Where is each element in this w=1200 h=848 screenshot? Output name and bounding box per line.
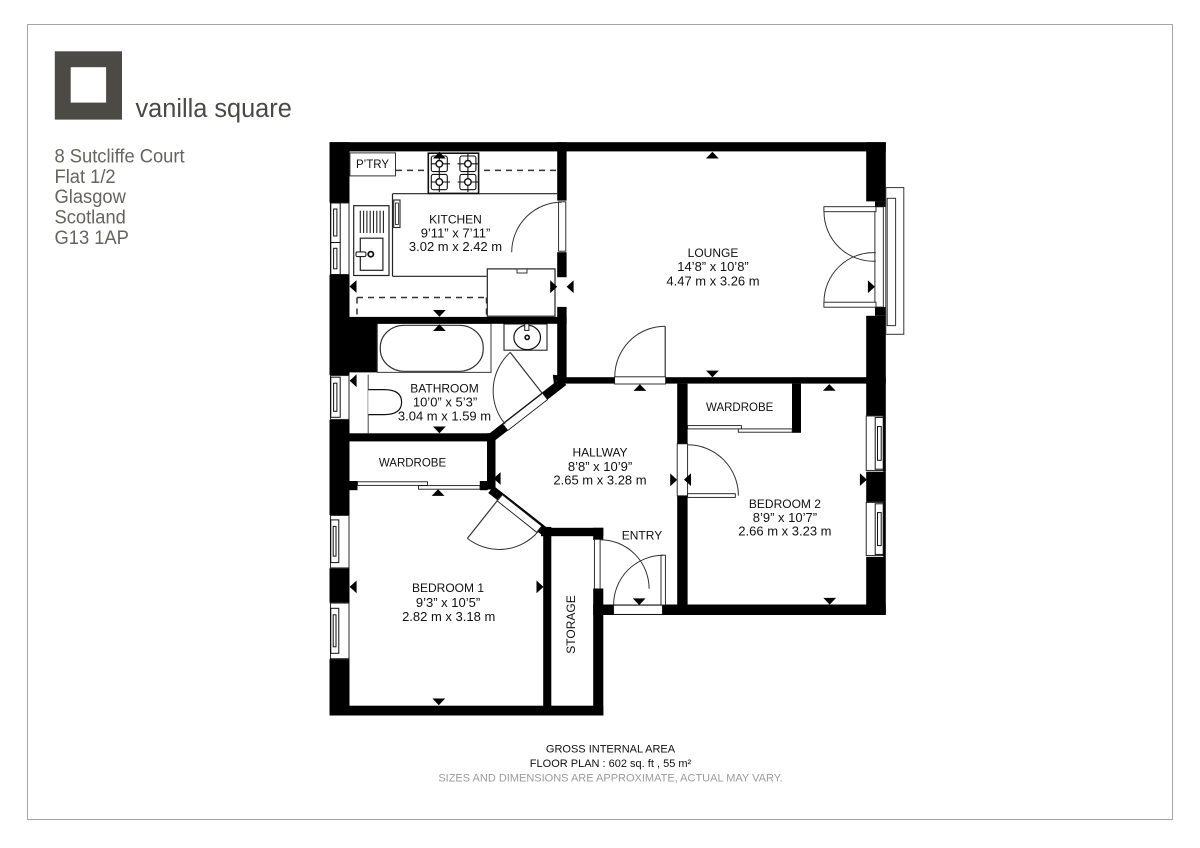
- svg-text:WARDROBE: WARDROBE: [379, 458, 447, 470]
- svg-text:ENTRY: ENTRY: [622, 529, 662, 543]
- svg-text:WARDROBE: WARDROBE: [706, 402, 774, 414]
- svg-text:14’8” x 10’8”: 14’8” x 10’8”: [677, 259, 749, 274]
- svg-text:Flat 1/2: Flat 1/2: [54, 166, 115, 187]
- svg-text:2.82 m x 3.18 m: 2.82 m x 3.18 m: [402, 609, 495, 624]
- svg-text:3.02 m x 2.42 m: 3.02 m x 2.42 m: [409, 239, 502, 254]
- svg-text:4.47 m x 3.26 m: 4.47 m x 3.26 m: [666, 274, 759, 289]
- svg-text:BEDROOM 1: BEDROOM 1: [412, 581, 484, 595]
- svg-text:3.04 m x 1.59 m: 3.04 m x 1.59 m: [398, 409, 491, 424]
- svg-text:BATHROOM: BATHROOM: [410, 382, 478, 396]
- svg-text:9’3” x 10’5”: 9’3” x 10’5”: [416, 595, 480, 610]
- svg-text:KITCHEN: KITCHEN: [429, 212, 482, 226]
- svg-text:Scotland: Scotland: [54, 206, 125, 227]
- svg-text:10’0” x 5’3”: 10’0” x 5’3”: [413, 395, 477, 410]
- svg-text:2.66 m x 3.23 m: 2.66 m x 3.23 m: [738, 524, 831, 539]
- svg-text:STORAGE: STORAGE: [564, 595, 578, 653]
- svg-text:vanilla square: vanilla square: [136, 95, 292, 123]
- svg-text:FLOOR PLAN : 602 sq. ft , 55 m: FLOOR PLAN : 602 sq. ft , 55 m²: [530, 758, 692, 770]
- svg-text:8 Sutcliffe Court: 8 Sutcliffe Court: [54, 145, 185, 166]
- svg-text:GROSS INTERNAL AREA: GROSS INTERNAL AREA: [546, 744, 676, 756]
- svg-text:HALLWAY: HALLWAY: [572, 446, 627, 460]
- svg-text:2.65 m x 3.28 m: 2.65 m x 3.28 m: [553, 473, 646, 488]
- svg-text:SIZES AND DIMENSIONS ARE APPRO: SIZES AND DIMENSIONS ARE APPROXIMATE, AC…: [438, 773, 782, 785]
- svg-text:P’TRY: P’TRY: [356, 159, 389, 171]
- svg-text:G13 1AP: G13 1AP: [54, 227, 128, 248]
- svg-text:Glasgow: Glasgow: [54, 186, 126, 207]
- svg-text:LOUNGE: LOUNGE: [688, 246, 739, 260]
